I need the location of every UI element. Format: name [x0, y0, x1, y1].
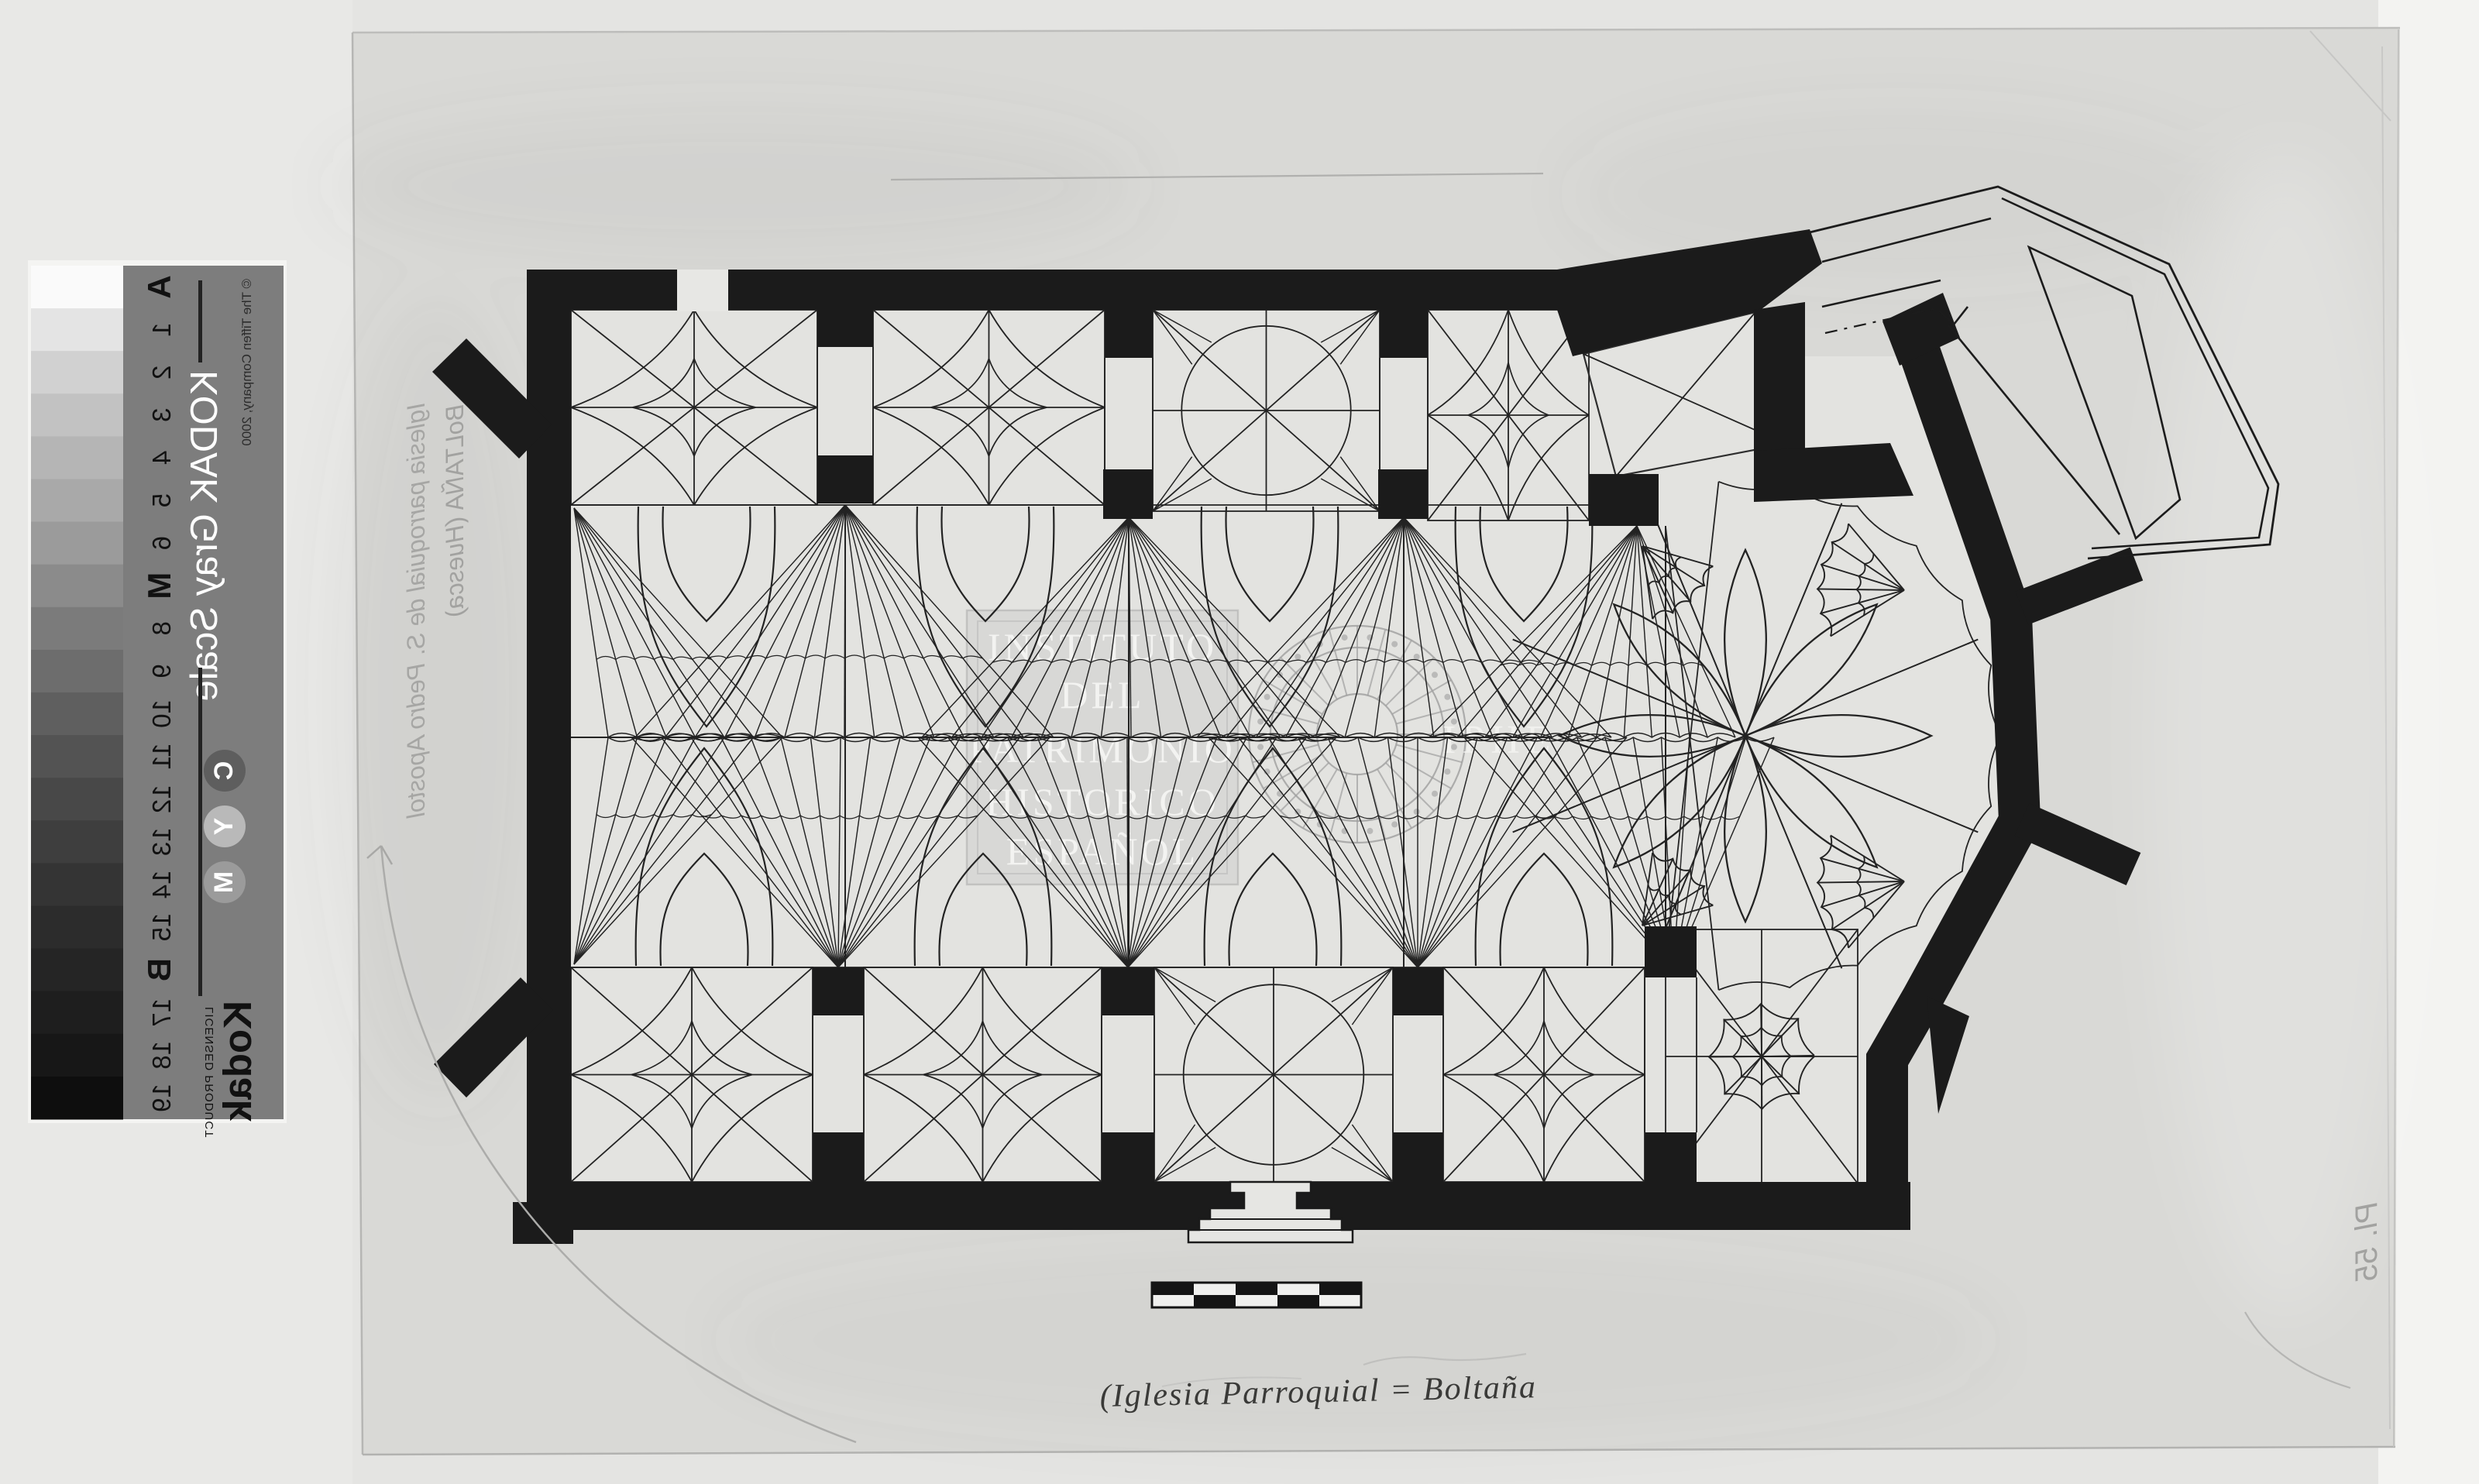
- svg-text:1: 1: [147, 322, 176, 336]
- svg-text:14: 14: [147, 871, 176, 899]
- svg-text:18: 18: [147, 1041, 176, 1070]
- svg-text:LICENSED PRODUCT: LICENSED PRODUCT: [203, 1007, 216, 1138]
- svg-text:B: B: [141, 958, 177, 981]
- svg-text:17: 17: [147, 998, 176, 1027]
- svg-text:Pl. 55: Pl. 55: [2350, 1202, 2384, 1282]
- svg-text:19: 19: [147, 1084, 176, 1112]
- svg-text:11: 11: [147, 744, 176, 770]
- svg-text:Y: Y: [209, 818, 239, 836]
- svg-text:Kodak: Kodak: [215, 1001, 260, 1122]
- svg-text:2: 2: [147, 366, 176, 380]
- svg-text:KODAK Gray Scale: KODAK Gray Scale: [184, 370, 225, 702]
- svg-text:9: 9: [147, 664, 176, 678]
- svg-text:4: 4: [147, 451, 176, 465]
- svg-text:10: 10: [147, 699, 176, 728]
- svg-text:8: 8: [147, 621, 176, 635]
- svg-text:12: 12: [147, 785, 176, 813]
- svg-text:C: C: [209, 761, 239, 781]
- svg-text:DEL: DEL: [1060, 673, 1144, 716]
- svg-text:15: 15: [147, 913, 176, 942]
- svg-text:© The Tiffen Company, 2000: © The Tiffen Company, 2000: [239, 279, 254, 446]
- svg-text:Iglesia parroquial de S. Pedro: Iglesia parroquial de S. Pedro Apostol: [402, 403, 430, 819]
- svg-text:A: A: [141, 275, 177, 298]
- svg-text:BoLTAÑA (Huesca): BoLTAÑA (Huesca): [441, 404, 469, 617]
- svg-text:M: M: [141, 572, 177, 599]
- svg-text:M: M: [209, 871, 239, 893]
- svg-text:6: 6: [147, 536, 176, 550]
- svg-text:3: 3: [147, 408, 176, 422]
- svg-text:5: 5: [147, 493, 176, 507]
- svg-text:13: 13: [147, 827, 176, 856]
